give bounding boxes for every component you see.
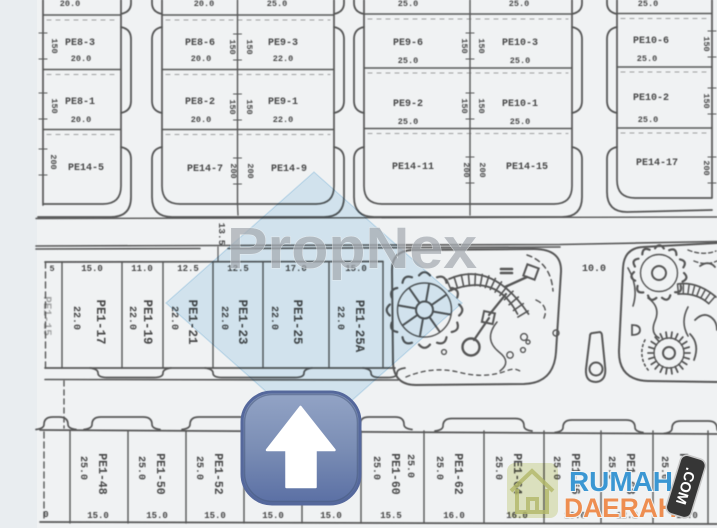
svg-text:PE1-15: PE1-15: [40, 296, 52, 336]
svg-text:PE1-62: PE1-62: [451, 453, 464, 495]
svg-text:150: 150: [244, 99, 254, 114]
svg-text:15.0: 15.0: [146, 511, 168, 521]
svg-text:20.0: 20.0: [194, 0, 214, 9]
svg-text:150: 150: [49, 98, 59, 113]
svg-text:20.0: 20.0: [191, 54, 211, 64]
svg-text:PE8-2: PE8-2: [185, 97, 215, 108]
svg-text:25.0: 25.0: [398, 56, 418, 66]
svg-text:PE1-52: PE1-52: [211, 453, 224, 495]
svg-text:PE14-11: PE14-11: [392, 162, 434, 173]
svg-text:25.0: 25.0: [404, 454, 415, 478]
svg-text:PE1-50: PE1-50: [153, 453, 166, 495]
svg-text:25.0: 25.0: [637, 54, 657, 64]
svg-text:22.0: 22.0: [273, 54, 293, 64]
svg-text:15.0: 15.0: [320, 511, 342, 521]
svg-text:15.5: 15.5: [380, 511, 402, 521]
svg-text:200: 200: [245, 163, 255, 178]
svg-text:150: 150: [701, 36, 711, 51]
svg-text:PE8-6: PE8-6: [185, 38, 215, 49]
svg-text:25.0: 25.0: [509, 0, 529, 9]
svg-text:PropNex: PropNex: [227, 216, 477, 281]
svg-text:25.0: 25.0: [77, 456, 88, 480]
svg-text:PE9-1: PE9-1: [268, 97, 298, 108]
svg-text:PE14-17: PE14-17: [636, 158, 678, 169]
svg-text:DAERAH: DAERAH: [564, 493, 677, 523]
svg-text:20.0: 20.0: [71, 54, 91, 64]
svg-text:25.0: 25.0: [638, 0, 658, 9]
svg-text:16.0: 16.0: [443, 511, 465, 521]
svg-text:PE8-1: PE8-1: [65, 97, 95, 108]
svg-text:25.0: 25.0: [398, 117, 418, 127]
svg-text:PE14-7: PE14-7: [187, 164, 223, 175]
svg-text:150: 150: [459, 38, 469, 53]
svg-text:13.5: 13.5: [216, 223, 227, 246]
svg-text:PE9-2: PE9-2: [393, 99, 423, 110]
svg-text:PE1-48: PE1-48: [95, 453, 108, 495]
svg-text:5: 5: [49, 264, 54, 274]
svg-text:15.0: 15.0: [262, 511, 284, 521]
svg-text:0: 0: [43, 510, 48, 520]
svg-text:22.0: 22.0: [273, 115, 293, 125]
svg-text:20.0: 20.0: [71, 115, 91, 125]
svg-text:25.0: 25.0: [135, 456, 146, 480]
svg-text:22.0: 22.0: [126, 306, 137, 330]
svg-text:22.0: 22.0: [70, 306, 81, 330]
svg-text:150: 150: [227, 99, 237, 114]
svg-text:PE10-6: PE10-6: [633, 36, 669, 47]
svg-text:PE1-19: PE1-19: [140, 299, 154, 344]
svg-text:25.0: 25.0: [370, 456, 381, 480]
svg-text:200: 200: [48, 154, 58, 169]
svg-text:25.0: 25.0: [433, 456, 444, 480]
svg-text:150: 150: [49, 38, 59, 53]
svg-text:25.0: 25.0: [510, 117, 530, 127]
svg-text:150: 150: [476, 98, 486, 113]
svg-text:200: 200: [701, 160, 711, 175]
svg-text:200: 200: [461, 162, 471, 177]
svg-text:20.0: 20.0: [191, 115, 211, 125]
svg-text:25.0: 25.0: [267, 0, 287, 9]
svg-text:15.0: 15.0: [81, 264, 103, 274]
svg-text:20.0: 20.0: [60, 0, 80, 9]
svg-text:PE10-2: PE10-2: [633, 93, 669, 104]
svg-text:150: 150: [701, 93, 711, 108]
svg-text:PE9-6: PE9-6: [393, 38, 423, 49]
svg-text:PE14-5: PE14-5: [68, 163, 104, 174]
svg-text:25.0: 25.0: [638, 115, 658, 125]
svg-text:25.0: 25.0: [398, 0, 418, 9]
svg-text:150: 150: [476, 38, 486, 53]
svg-text:PE8-3: PE8-3: [65, 38, 95, 49]
svg-text:PE1-60: PE1-60: [388, 453, 401, 495]
svg-text:15.0: 15.0: [204, 511, 226, 521]
svg-text:12.5: 12.5: [177, 264, 199, 274]
svg-text:200: 200: [228, 163, 238, 178]
svg-text:25.0: 25.0: [193, 456, 204, 480]
svg-text:PE10-1: PE10-1: [502, 99, 538, 110]
svg-text:25.0: 25.0: [492, 456, 503, 480]
svg-text:25.0: 25.0: [510, 56, 530, 66]
svg-text:200: 200: [477, 162, 487, 177]
svg-text:PE14-9: PE14-9: [271, 164, 307, 175]
svg-text:11.0: 11.0: [131, 264, 153, 274]
svg-text:150: 150: [244, 39, 254, 54]
svg-text:150: 150: [227, 39, 237, 54]
svg-text:PE1-17: PE1-17: [93, 299, 107, 344]
svg-text:PE9-3: PE9-3: [268, 38, 298, 49]
svg-text:150: 150: [459, 98, 469, 113]
svg-text:15.0: 15.0: [87, 511, 109, 521]
svg-text:PE10-3: PE10-3: [502, 38, 538, 49]
svg-text:10.0: 10.0: [582, 264, 606, 275]
svg-text:PE14-15: PE14-15: [506, 162, 548, 173]
